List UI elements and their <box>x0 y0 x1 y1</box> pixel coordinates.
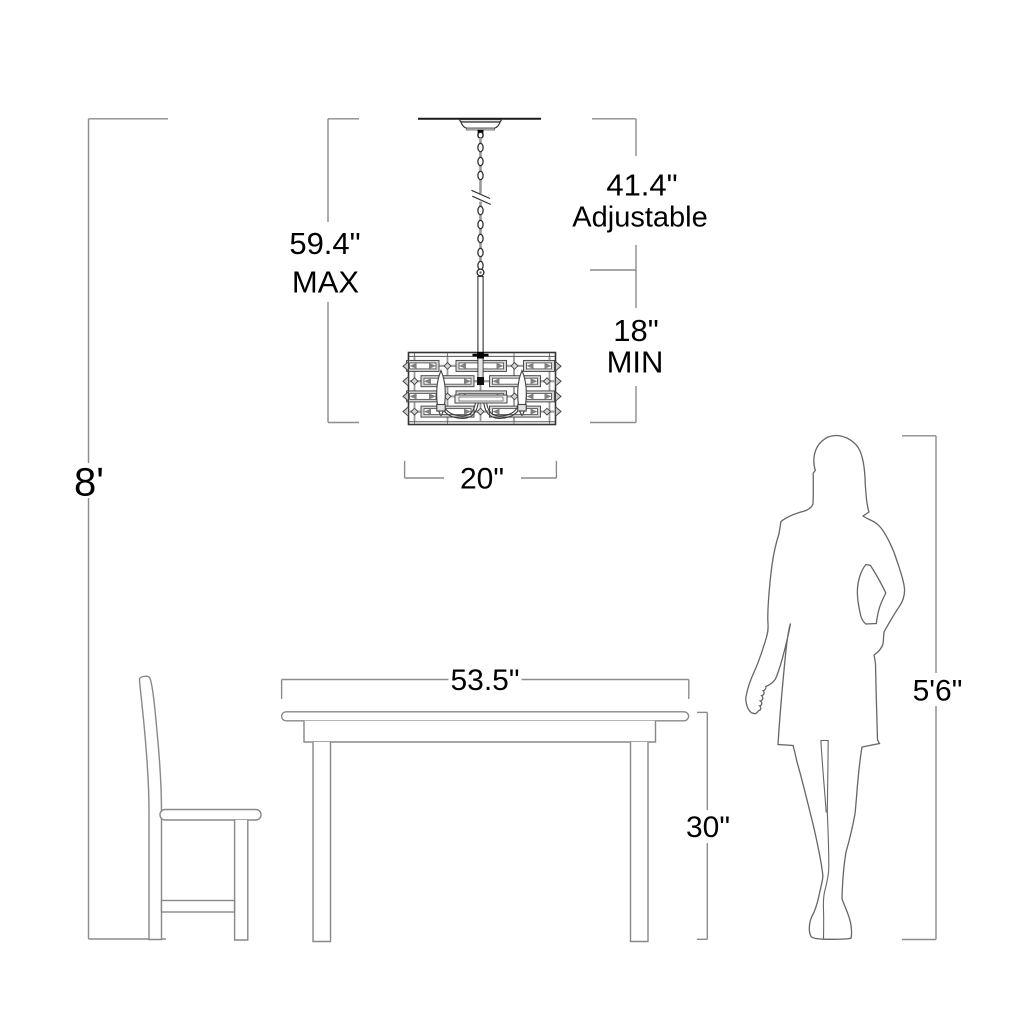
svg-text:20": 20" <box>460 463 504 496</box>
svg-text:8': 8' <box>74 460 104 504</box>
svg-text:MAX: MAX <box>292 265 360 300</box>
svg-text:30": 30" <box>686 811 730 844</box>
svg-text:53.5": 53.5" <box>450 664 519 697</box>
svg-text:Adjustable: Adjustable <box>572 202 707 234</box>
svg-text:41.4": 41.4" <box>606 168 677 203</box>
svg-text:MIN: MIN <box>607 345 664 380</box>
svg-text:59.4": 59.4" <box>289 226 360 261</box>
svg-text:18": 18" <box>613 313 659 348</box>
svg-text:5'6": 5'6" <box>913 675 963 708</box>
